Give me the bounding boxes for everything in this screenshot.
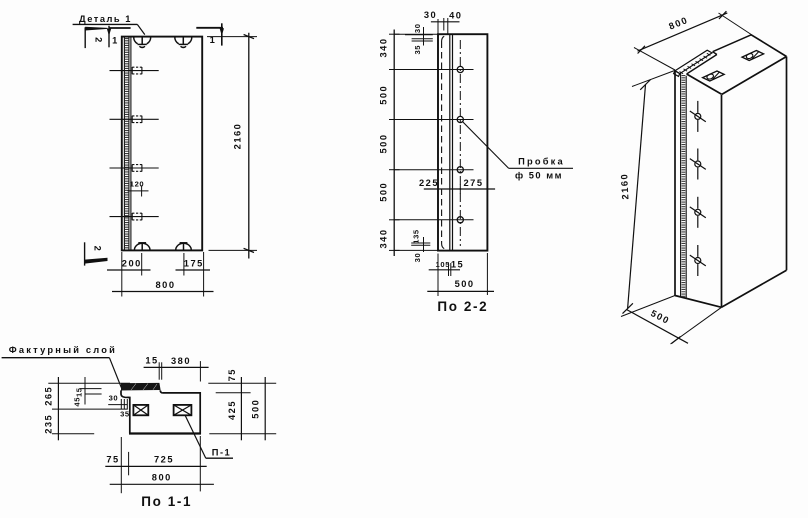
svg-text:800: 800 [155, 280, 175, 290]
svg-text:30: 30 [424, 10, 437, 20]
svg-text:15: 15 [145, 356, 158, 366]
svg-text:340: 340 [379, 228, 389, 248]
svg-text:35: 35 [413, 45, 422, 55]
svg-text:265: 265 [44, 386, 54, 406]
svg-text:2: 2 [93, 246, 103, 253]
svg-text:Пробка: Пробка [518, 157, 565, 167]
svg-text:75: 75 [227, 368, 237, 381]
svg-text:235: 235 [44, 414, 54, 434]
svg-text:Фактурный слой: Фактурный слой [9, 345, 117, 355]
svg-text:75: 75 [106, 455, 119, 465]
svg-text:1: 1 [112, 36, 119, 46]
svg-text:500: 500 [455, 279, 475, 289]
svg-text:2160: 2160 [233, 123, 243, 150]
svg-text:15: 15 [451, 259, 464, 269]
svg-text:30: 30 [413, 253, 422, 263]
svg-text:15: 15 [74, 387, 83, 397]
svg-text:725: 725 [154, 455, 174, 465]
svg-text:135: 135 [412, 229, 421, 244]
svg-text:105: 105 [436, 260, 451, 269]
svg-text:200: 200 [122, 259, 142, 269]
svg-text:500: 500 [379, 85, 389, 105]
svg-text:30: 30 [413, 23, 422, 33]
svg-text:500: 500 [379, 133, 389, 153]
svg-text:По 2-2: По 2-2 [437, 299, 488, 314]
svg-text:П-1: П-1 [212, 448, 231, 458]
svg-text:425: 425 [227, 400, 237, 420]
svg-text:275: 275 [463, 178, 483, 188]
svg-text:45: 45 [72, 397, 81, 407]
svg-text:175: 175 [184, 259, 204, 269]
svg-text:225: 225 [419, 178, 439, 188]
svg-text:340: 340 [379, 37, 389, 57]
svg-text:Деталь 1: Деталь 1 [79, 14, 132, 24]
svg-text:По 1-1: По 1-1 [141, 494, 192, 509]
svg-text:35: 35 [120, 410, 130, 419]
svg-text:40: 40 [449, 11, 462, 21]
svg-text:500: 500 [250, 399, 260, 419]
svg-text:30: 30 [109, 394, 119, 403]
svg-text:500: 500 [379, 182, 389, 202]
svg-text:2: 2 [94, 37, 104, 44]
svg-text:800: 800 [152, 473, 172, 483]
svg-text:380: 380 [171, 356, 191, 366]
svg-text:2160: 2160 [619, 173, 630, 200]
svg-text:ф 50 мм: ф 50 мм [515, 171, 563, 181]
